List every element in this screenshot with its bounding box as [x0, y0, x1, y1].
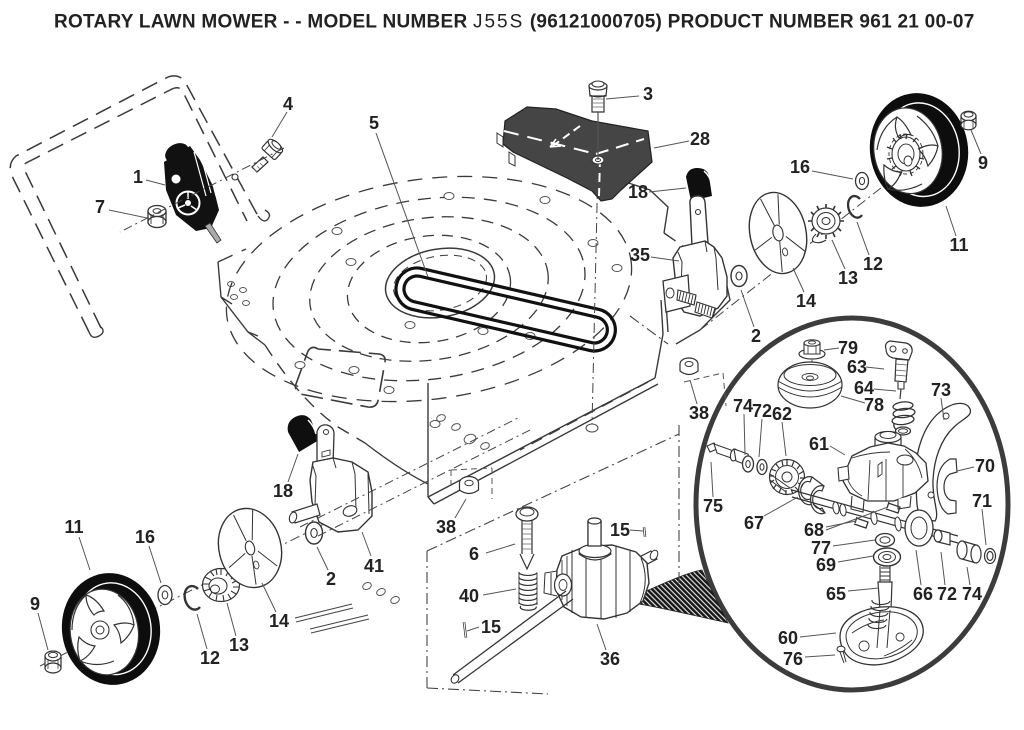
svg-text:13: 13	[838, 268, 858, 288]
svg-text:4: 4	[283, 94, 293, 114]
svg-text:38: 38	[689, 403, 709, 423]
svg-text:75: 75	[703, 496, 723, 516]
svg-text:61: 61	[809, 434, 829, 454]
svg-text:36: 36	[600, 649, 620, 669]
svg-text:71: 71	[972, 491, 992, 511]
svg-text:18: 18	[628, 182, 648, 202]
svg-text:16: 16	[790, 157, 810, 177]
svg-text:63: 63	[847, 357, 867, 377]
svg-text:11: 11	[949, 235, 968, 255]
svg-text:ROTARY LAWN MOWER - - MODEL NU: ROTARY LAWN MOWER - - MODEL NUMBER J55S …	[54, 12, 975, 33]
svg-text:68: 68	[804, 520, 824, 540]
svg-text:78: 78	[864, 395, 884, 415]
svg-text:41: 41	[364, 556, 384, 576]
svg-text:67: 67	[744, 513, 764, 533]
svg-text:1: 1	[133, 167, 143, 187]
svg-text:14: 14	[269, 611, 289, 631]
svg-text:76: 76	[783, 649, 803, 669]
svg-text:66: 66	[913, 584, 933, 604]
svg-text:15: 15	[610, 520, 630, 540]
svg-text:6: 6	[469, 544, 479, 564]
svg-text:7: 7	[95, 197, 105, 217]
svg-text:2: 2	[326, 569, 336, 589]
svg-text:12: 12	[200, 648, 220, 668]
svg-text:12: 12	[863, 254, 883, 274]
svg-text:3: 3	[643, 84, 653, 104]
svg-text:65: 65	[826, 584, 846, 604]
svg-text:15: 15	[481, 617, 501, 637]
svg-text:74: 74	[962, 584, 982, 604]
svg-text:9: 9	[30, 594, 40, 614]
svg-text:35: 35	[630, 245, 650, 265]
svg-text:62: 62	[772, 404, 792, 424]
svg-text:69: 69	[816, 555, 836, 575]
svg-text:28: 28	[690, 129, 710, 149]
svg-text:40: 40	[459, 586, 479, 606]
svg-text:60: 60	[778, 628, 798, 648]
svg-text:74: 74	[733, 396, 753, 416]
svg-text:72: 72	[937, 584, 957, 604]
svg-text:13: 13	[229, 635, 249, 655]
svg-text:38: 38	[436, 517, 456, 537]
svg-text:79: 79	[838, 338, 858, 358]
svg-text:9: 9	[978, 153, 988, 173]
svg-text:16: 16	[135, 527, 155, 547]
svg-text:72: 72	[752, 401, 772, 421]
svg-text:73: 73	[931, 380, 951, 400]
svg-text:14: 14	[796, 291, 816, 311]
svg-text:18: 18	[273, 481, 293, 501]
svg-text:11: 11	[64, 517, 83, 537]
svg-text:70: 70	[975, 456, 995, 476]
svg-text:5: 5	[369, 113, 379, 133]
svg-text:2: 2	[751, 326, 761, 346]
